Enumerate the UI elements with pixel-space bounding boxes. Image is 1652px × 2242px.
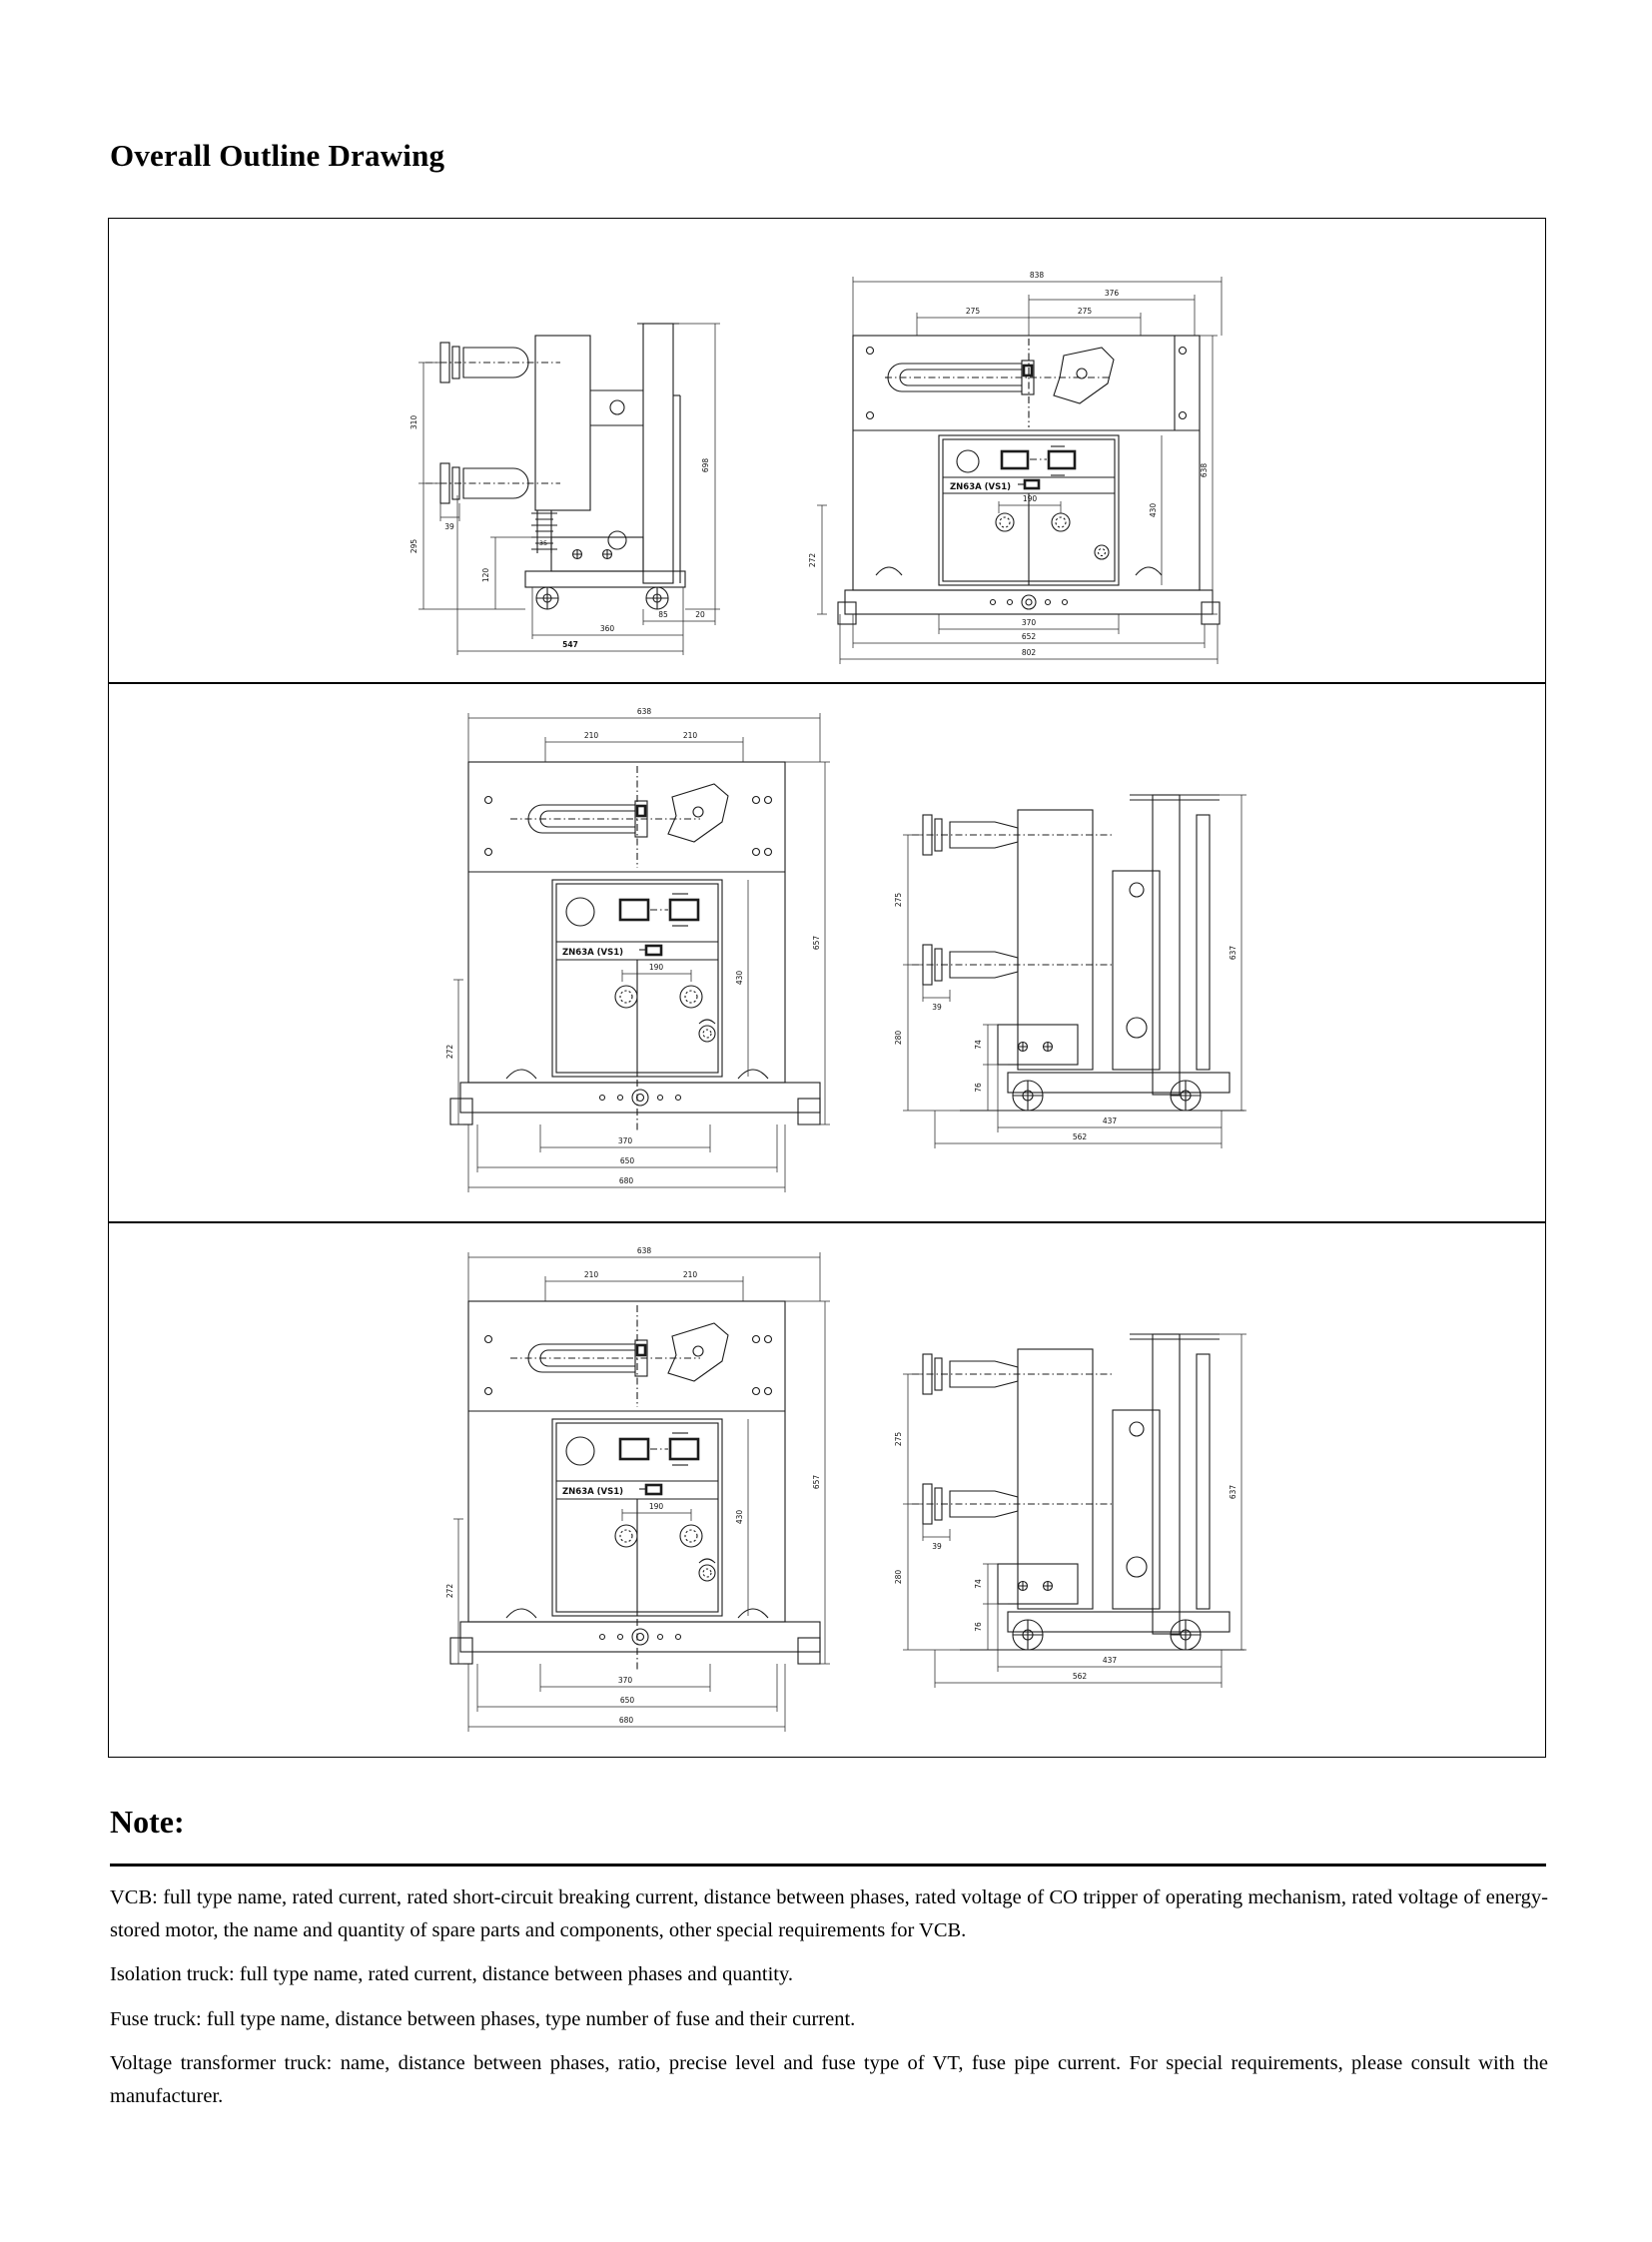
note-item-vcb: VCB: full type name, rated current, rate… xyxy=(110,1881,1548,1947)
dim-label: 210 xyxy=(584,1270,599,1279)
dim-label: 190 xyxy=(649,1502,664,1511)
note-heading: Note: xyxy=(110,1804,185,1841)
dim-label: 430 xyxy=(735,1510,744,1525)
dim-label: 802 xyxy=(1022,648,1037,657)
dim-label: 430 xyxy=(735,971,744,986)
dim-label: 20 xyxy=(695,610,705,619)
dim-label: 370 xyxy=(618,1136,633,1145)
dim-label: 430 xyxy=(1149,503,1158,518)
note-item-vt-truck: Voltage transformer truck: name, distanc… xyxy=(110,2047,1548,2113)
row1-side-view-drawing: 310 295 39 120 35 698 85 20 360 547 xyxy=(386,296,745,660)
nameplate-label: ZN63A (VS1) xyxy=(562,948,623,958)
dim-label: 437 xyxy=(1103,1656,1118,1665)
row2-front-view-drawing: 638 210 210 190 272 430 657 370 xyxy=(450,700,840,1204)
dim-label: 562 xyxy=(1073,1672,1088,1681)
dim-label: 120 xyxy=(481,568,490,583)
row3-front-view-drawing: 638 210 210 190 272 430 657 370 xyxy=(450,1239,840,1744)
row1-front-view-drawing: 838 376 275 275 190 272 430 638 xyxy=(810,266,1230,665)
drawing-frame: 310 295 39 120 35 698 85 20 360 547 xyxy=(108,218,1546,1758)
dim-label: 652 xyxy=(1022,632,1037,641)
dim-label: 39 xyxy=(444,522,454,531)
dim-label: 275 xyxy=(894,893,903,908)
note-section: VCB: full type name, rated current, rate… xyxy=(110,1881,1548,2124)
dim-label: 370 xyxy=(618,1676,633,1685)
dim-label: 272 xyxy=(445,1584,454,1599)
dim-label: 35 xyxy=(539,539,547,547)
dim-label: 272 xyxy=(445,1045,454,1060)
dim-label: 280 xyxy=(894,1570,903,1585)
dim-label: 370 xyxy=(1022,618,1037,627)
dim-label: 680 xyxy=(619,1176,634,1185)
note-divider-rule xyxy=(110,1864,1546,1867)
row-divider-2 xyxy=(109,1221,1545,1223)
dim-label: 280 xyxy=(894,1031,903,1046)
dim-label: 638 xyxy=(637,707,652,716)
dim-label: 39 xyxy=(932,1003,942,1012)
dim-label: 562 xyxy=(1073,1132,1088,1141)
dim-label: 360 xyxy=(600,624,615,633)
dim-label: 637 xyxy=(1229,1485,1238,1500)
dim-label: 680 xyxy=(619,1716,634,1725)
dim-label: 650 xyxy=(620,1156,635,1165)
row1-front-geometry xyxy=(838,336,1220,624)
note-item-isolation-truck: Isolation truck: full type name, rated c… xyxy=(110,1958,1548,1991)
dim-label: 637 xyxy=(1229,946,1238,961)
page-title: Overall Outline Drawing xyxy=(110,138,444,174)
dim-label: 275 xyxy=(1078,307,1093,316)
nameplate-label: ZN63A (VS1) xyxy=(562,1487,623,1497)
dim-label: 650 xyxy=(620,1696,635,1705)
nameplate-label: ZN63A (VS1) xyxy=(950,482,1011,492)
dim-label: 85 xyxy=(658,610,668,619)
dim-label: 272 xyxy=(808,553,817,568)
dim-label: 838 xyxy=(1030,271,1045,280)
dim-label: 547 xyxy=(562,640,578,649)
dim-label: 210 xyxy=(683,731,698,740)
dim-label: 74 xyxy=(974,1040,983,1050)
dim-label: 638 xyxy=(637,1246,652,1255)
dim-label: 210 xyxy=(683,1270,698,1279)
dim-label: 657 xyxy=(812,936,821,951)
row2-side-geometry xyxy=(912,795,1244,1111)
dim-label: 437 xyxy=(1103,1117,1118,1125)
dim-label: 698 xyxy=(701,458,710,473)
dim-label: 275 xyxy=(966,307,981,316)
row3-front-geometry xyxy=(450,1301,820,1671)
dim-label: 310 xyxy=(410,415,418,430)
row3-side-view-drawing: 275 280 39 74 76 637 437 562 xyxy=(890,1279,1259,1689)
row2-front-geometry xyxy=(450,762,820,1131)
row1-side-geometry xyxy=(425,324,685,609)
dim-label: 638 xyxy=(1200,463,1209,478)
dim-label: 190 xyxy=(649,963,664,972)
dim-label: 76 xyxy=(974,1083,983,1093)
dim-label: 76 xyxy=(974,1622,983,1632)
dim-label: 657 xyxy=(812,1475,821,1490)
row-divider-1 xyxy=(109,682,1545,684)
dim-label: 210 xyxy=(584,731,599,740)
dim-label: 275 xyxy=(894,1432,903,1447)
dim-label: 39 xyxy=(932,1542,942,1551)
catalog-page: Overall Outline Drawing xyxy=(0,0,1652,2242)
dim-label: 74 xyxy=(974,1579,983,1589)
row3-side-geometry xyxy=(912,1334,1244,1650)
dim-label: 376 xyxy=(1105,289,1120,298)
note-item-fuse-truck: Fuse truck: full type name, distance bet… xyxy=(110,2003,1548,2036)
dim-label: 190 xyxy=(1023,494,1038,503)
row2-side-view-drawing: 275 280 39 74 76 637 437 562 xyxy=(890,740,1259,1149)
dim-label: 295 xyxy=(410,539,418,554)
